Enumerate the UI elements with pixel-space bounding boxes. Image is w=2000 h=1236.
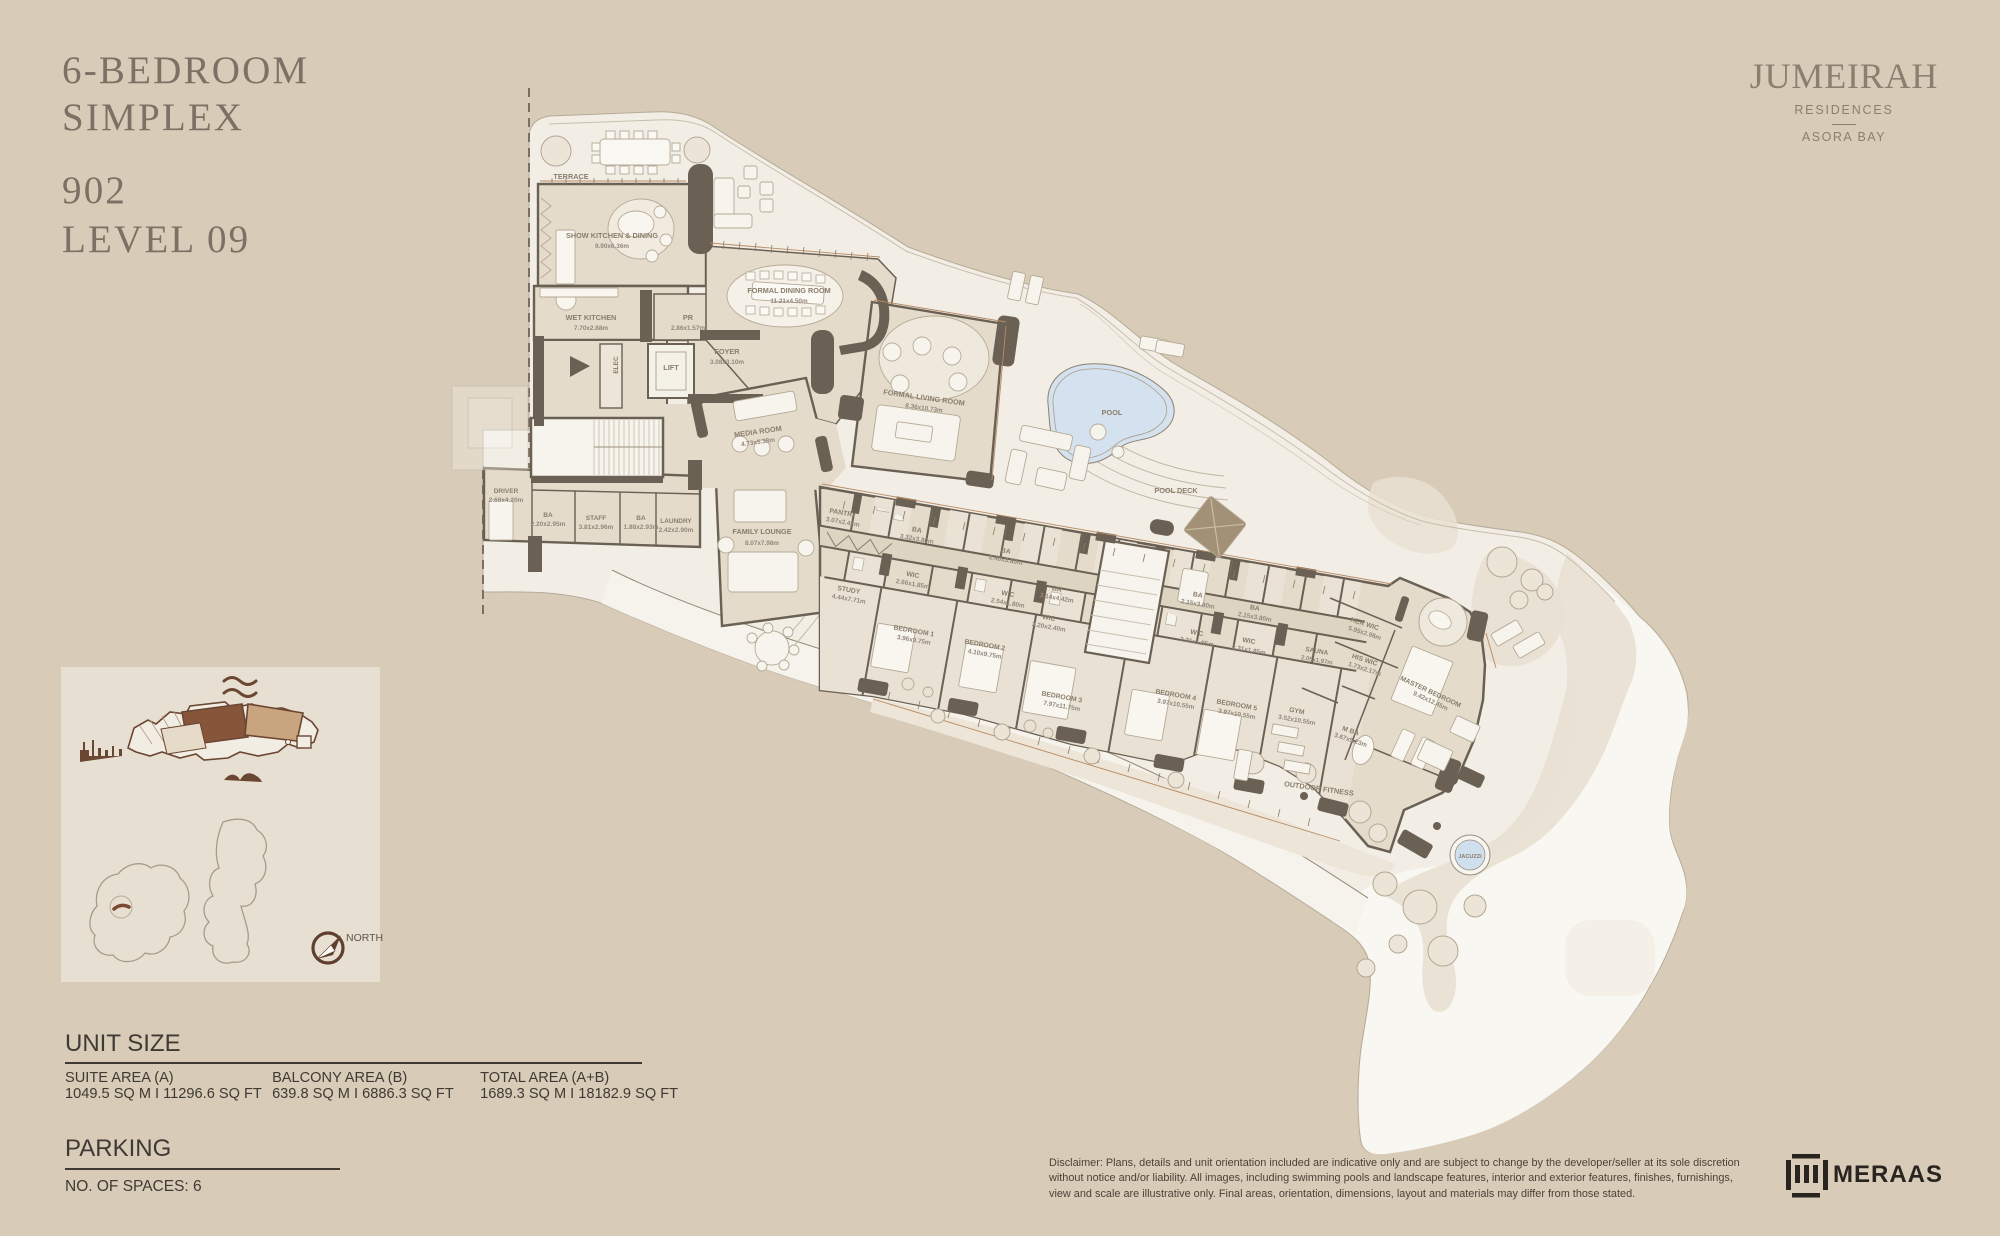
- svg-text:DRIVER: DRIVER: [494, 488, 519, 495]
- svg-text:LIFT: LIFT: [663, 363, 679, 372]
- svg-text:3.08x3.10m: 3.08x3.10m: [710, 359, 744, 366]
- svg-text:NORTH: NORTH: [346, 932, 383, 944]
- svg-text:FOYER: FOYER: [714, 347, 740, 356]
- svg-text:11.21x4.50m: 11.21x4.50m: [770, 298, 808, 305]
- svg-text:3.81x2.96m: 3.81x2.96m: [579, 524, 614, 531]
- svg-text:MERAAS: MERAAS: [1833, 1161, 1943, 1188]
- svg-text:JACUZZI: JACUZZI: [1458, 854, 1482, 860]
- svg-text:ELEC: ELEC: [613, 356, 620, 374]
- svg-text:POOL DECK: POOL DECK: [1154, 486, 1198, 495]
- svg-text:2.68x4.20m: 2.68x4.20m: [489, 497, 524, 504]
- svg-text:LAUNDRY: LAUNDRY: [660, 518, 692, 525]
- svg-text:BA: BA: [636, 515, 646, 522]
- svg-text:2.20x2.95m: 2.20x2.95m: [531, 521, 566, 528]
- svg-text:8.07x7.98m: 8.07x7.98m: [745, 540, 779, 547]
- svg-text:WET KITCHEN: WET KITCHEN: [566, 313, 617, 322]
- svg-text:FAMILY LOUNGE: FAMILY LOUNGE: [732, 527, 791, 536]
- svg-text:1.88x2.93m: 1.88x2.93m: [624, 524, 659, 531]
- svg-text:2.42x2.90m: 2.42x2.90m: [659, 527, 694, 534]
- svg-text:9.90x6.36m: 9.90x6.36m: [595, 243, 629, 250]
- svg-text:PR: PR: [683, 313, 694, 322]
- svg-text:FORMAL DINING ROOM: FORMAL DINING ROOM: [747, 286, 830, 295]
- svg-text:SHOW KITCHEN & DINING: SHOW KITCHEN & DINING: [566, 231, 658, 240]
- svg-text:BA: BA: [543, 512, 553, 519]
- svg-text:7.70x2.88m: 7.70x2.88m: [574, 325, 608, 332]
- svg-text:TERRACE: TERRACE: [553, 172, 588, 181]
- svg-text:2.86x1.57m: 2.86x1.57m: [671, 325, 705, 332]
- svg-text:STAFF: STAFF: [586, 515, 606, 522]
- svg-text:POOL: POOL: [1102, 408, 1123, 417]
